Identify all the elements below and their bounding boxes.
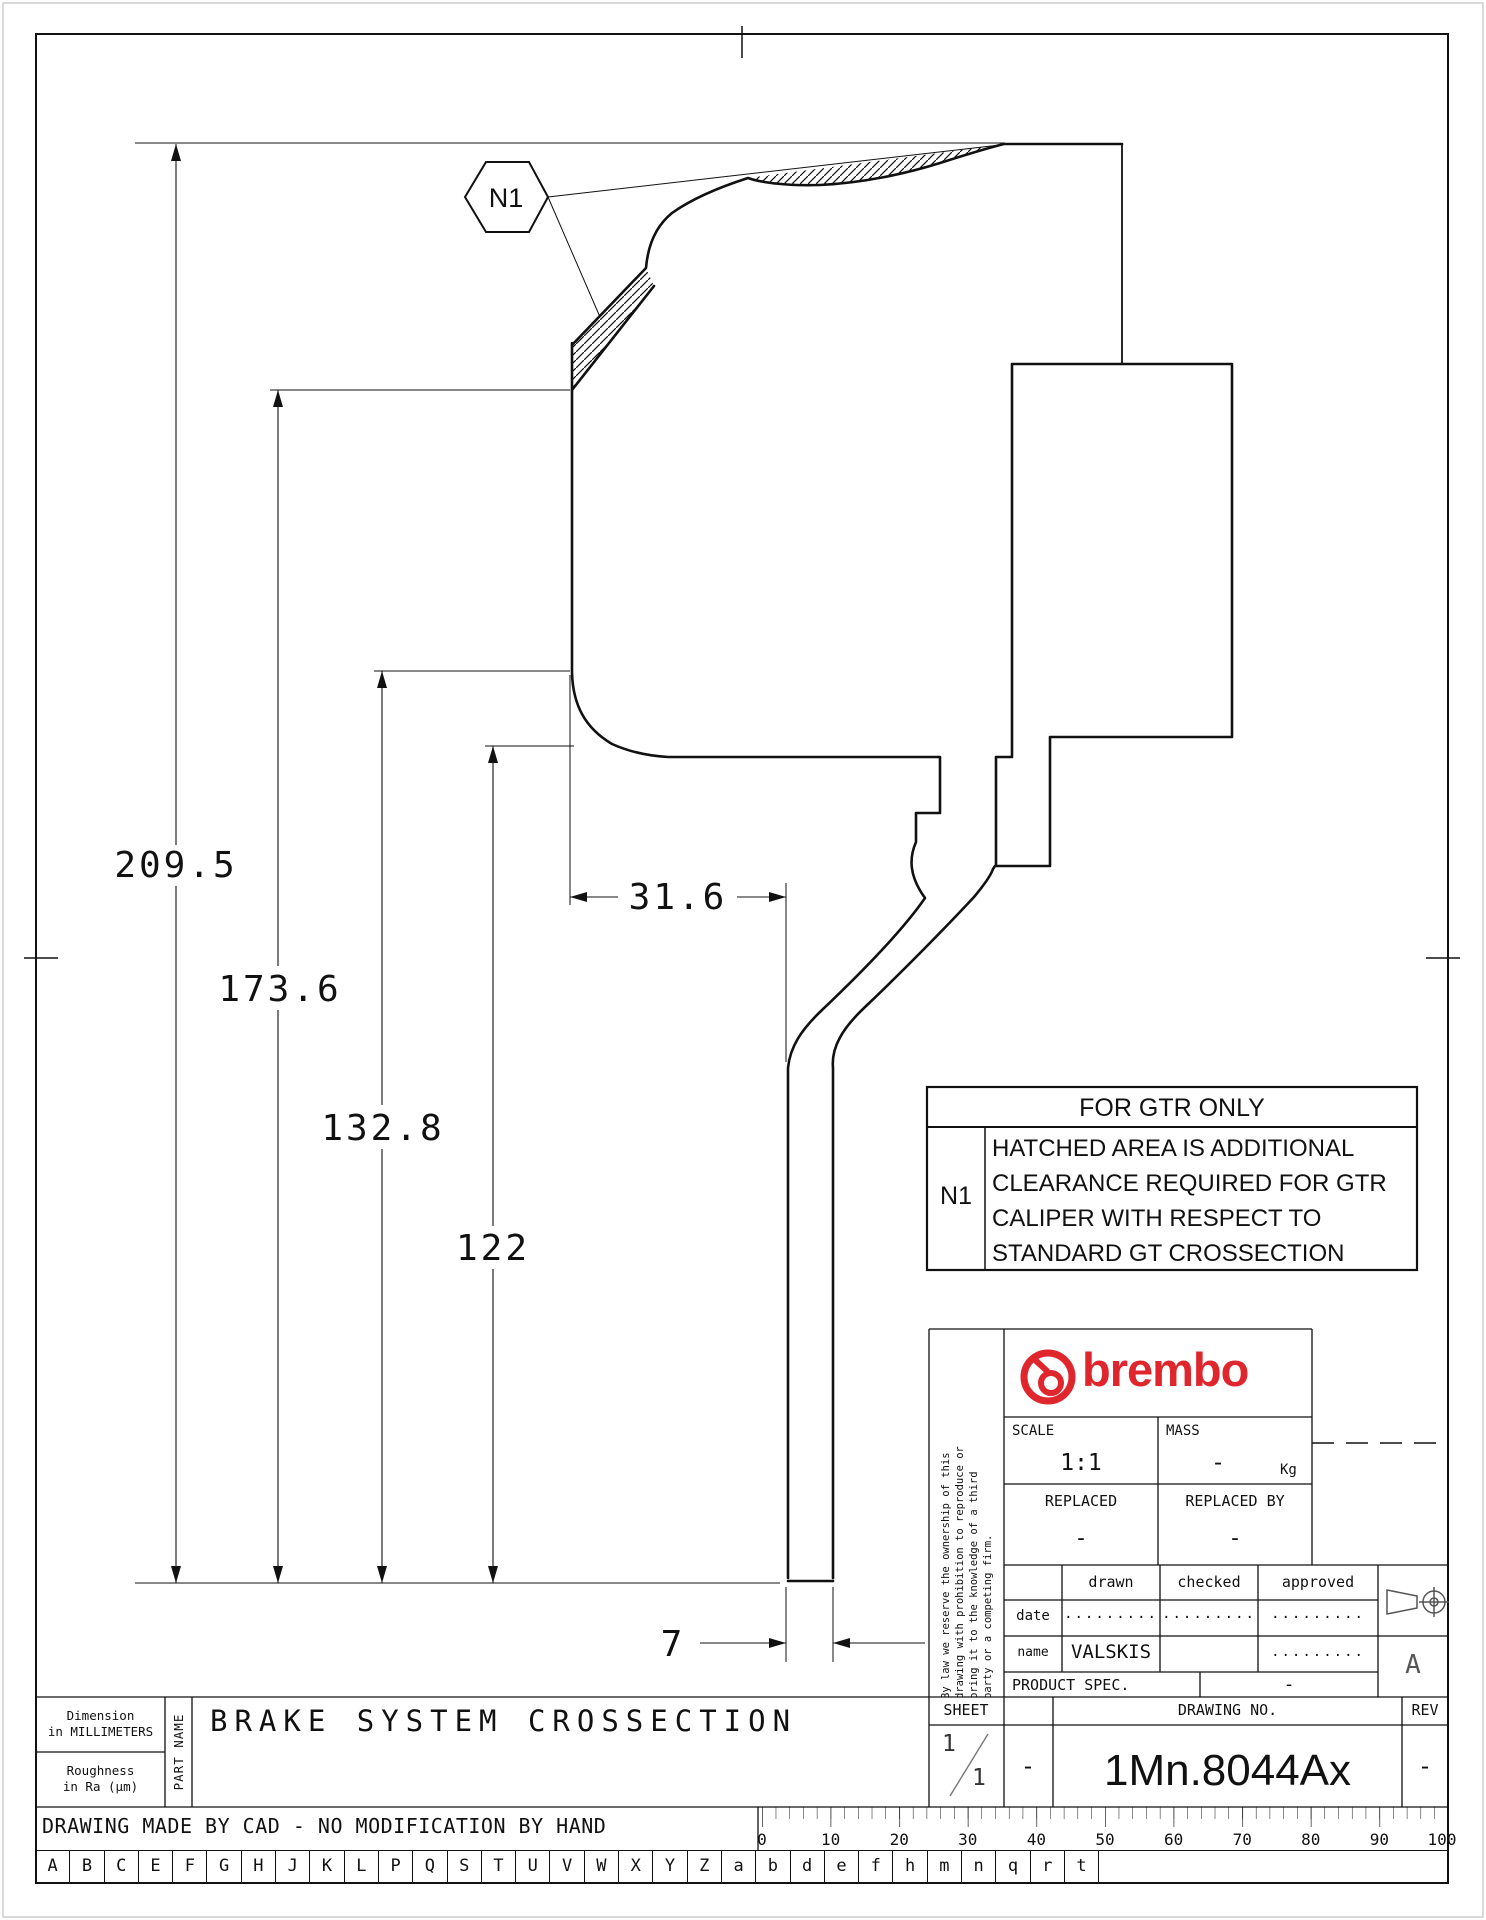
part-name-title: BRAKE SYSTEM CROSSECTION xyxy=(210,1704,797,1738)
checked-header: checked xyxy=(1160,1573,1258,1591)
legal-line: By law we reserve the ownership of this xyxy=(939,1331,953,1697)
index-letter: J xyxy=(276,1851,310,1883)
scale-value: 1:1 xyxy=(1004,1450,1158,1476)
ruler-label: 70 xyxy=(1233,1830,1252,1849)
date-checked-value: ......... xyxy=(1160,1606,1258,1622)
roughness-note-line1: Roughness xyxy=(36,1763,165,1779)
sheet-denominator: 1 xyxy=(972,1765,986,1791)
roughness-note-line2: in Ra (μm) xyxy=(36,1779,165,1795)
index-letter: h xyxy=(893,1851,927,1883)
index-letter: K xyxy=(310,1851,344,1883)
ruler-major-ticks xyxy=(762,1807,1449,1827)
scale-label: SCALE xyxy=(1012,1423,1054,1439)
dimension-note-line2: in MILLIMETERS xyxy=(36,1724,165,1740)
dim-label-31-6: 31.6 xyxy=(629,877,728,918)
mass-unit: Kg xyxy=(1280,1462,1297,1478)
part-name-label: PART NAME xyxy=(165,1697,192,1807)
dim-label-7: 7 xyxy=(661,1624,686,1665)
index-letter: L xyxy=(345,1851,379,1883)
index-letter: d xyxy=(791,1851,825,1883)
dimension-unit-note: Dimension in MILLIMETERS xyxy=(36,1708,165,1740)
mass-value: - xyxy=(1158,1450,1278,1476)
date-drawn-value: ......... xyxy=(1062,1606,1160,1622)
drawing-no-value: 1Mn.8044Ax xyxy=(1053,1746,1402,1796)
part-name-strip: PART NAME xyxy=(165,1697,192,1807)
legal-notice: By law we reserve the ownership of this … xyxy=(931,1331,1004,1697)
page-edge xyxy=(3,3,1483,1917)
projection-symbol-icon xyxy=(1387,1587,1449,1617)
index-letter: b xyxy=(756,1851,790,1883)
dimension-note-line1: Dimension xyxy=(36,1708,165,1724)
index-letter: t xyxy=(1065,1851,1099,1883)
index-letter: H xyxy=(242,1851,276,1883)
replaced-by-label: REPLACED BY xyxy=(1158,1492,1312,1510)
index-letter: U xyxy=(516,1851,550,1883)
ruler-label: 10 xyxy=(821,1830,840,1849)
index-letter: Y xyxy=(653,1851,687,1883)
index-letter: e xyxy=(825,1851,859,1883)
n1-callout-label: N1 xyxy=(489,183,524,213)
product-spec-label: PRODUCT SPEC. xyxy=(1012,1676,1129,1694)
ruler-labels: 0 10 20 30 40 50 60 70 80 90 100 xyxy=(757,1830,1456,1849)
mass-label: MASS xyxy=(1166,1423,1200,1439)
gtr-note-line: HATCHED AREA IS ADDITIONAL xyxy=(992,1131,1412,1166)
sheet-dash: - xyxy=(1003,1752,1053,1780)
extension-lines xyxy=(135,143,1005,1662)
index-letter: m xyxy=(928,1851,962,1883)
index-letter: T xyxy=(482,1851,516,1883)
ruler-label: 80 xyxy=(1301,1830,1320,1849)
brembo-logo-icon xyxy=(1024,1353,1072,1401)
index-letter: X xyxy=(619,1851,653,1883)
name-drawn-value: VALSKIS xyxy=(1062,1641,1160,1663)
ruler-label: 50 xyxy=(1095,1830,1114,1849)
roughness-unit-note: Roughness in Ra (μm) xyxy=(36,1763,165,1795)
index-letter: f xyxy=(859,1851,893,1883)
index-letter: n xyxy=(962,1851,996,1883)
index-letter: V xyxy=(550,1851,584,1883)
legal-line: party or a competing firm. xyxy=(981,1331,995,1697)
rev-label: REV xyxy=(1402,1701,1448,1719)
gtr-table-title: FOR GTR ONLY xyxy=(927,1094,1417,1123)
legal-line: drawing with prohibition to reproduce or xyxy=(953,1331,967,1697)
gtr-note-line: CLEARANCE REQUIRED FOR GTR xyxy=(992,1166,1412,1201)
approved-header: approved xyxy=(1258,1573,1378,1591)
index-letter: S xyxy=(448,1851,482,1883)
ruler-label: 40 xyxy=(1027,1830,1046,1849)
legal-line: bring it to the knowledge of a third xyxy=(967,1331,981,1697)
index-letter: r xyxy=(1031,1851,1065,1883)
date-approved-value: ......... xyxy=(1258,1606,1378,1622)
index-letter: W xyxy=(585,1851,619,1883)
ruler-label: 20 xyxy=(890,1830,909,1849)
index-letter: Q xyxy=(413,1851,447,1883)
name-approved-value: ......... xyxy=(1258,1644,1378,1660)
brembo-wordmark: brembo xyxy=(1082,1342,1248,1397)
index-letter: Z xyxy=(688,1851,722,1883)
date-label: date xyxy=(1004,1608,1062,1624)
cad-note: DRAWING MADE BY CAD - NO MODIFICATION BY… xyxy=(42,1814,606,1838)
ruler-label: 30 xyxy=(958,1830,977,1849)
gtr-table-note: HATCHED AREA IS ADDITIONAL CLEARANCE REQ… xyxy=(992,1131,1412,1271)
gtr-note-line: CALIPER WITH RESPECT TO xyxy=(992,1201,1412,1236)
centering-marks xyxy=(24,26,1460,958)
hatch-area-mid xyxy=(572,268,654,390)
ruler-label: 100 xyxy=(1428,1830,1457,1849)
cad-canvas: 209.5 173.6 132.8 122 31.6 7 N1 xyxy=(0,0,1486,1920)
projection-letter: A xyxy=(1378,1650,1448,1680)
dim-label-209-5: 209.5 xyxy=(114,845,237,886)
sheet-numerator: 1 xyxy=(942,1731,956,1757)
sheet-label: SHEET xyxy=(929,1701,1003,1719)
index-letter-filler xyxy=(1099,1851,1448,1883)
ruler-label: 60 xyxy=(1164,1830,1183,1849)
product-spec-value: - xyxy=(1200,1674,1378,1695)
drawing-no-label: DRAWING NO. xyxy=(1053,1701,1402,1719)
replaced-by-value: - xyxy=(1158,1526,1312,1551)
index-letter: A xyxy=(36,1851,70,1883)
index-letter: E xyxy=(139,1851,173,1883)
drawn-header: drawn xyxy=(1062,1573,1160,1591)
index-letter-row: A B C E F G H J K L P Q S T U V W X Y Z … xyxy=(36,1850,1448,1883)
gtr-table-ref: N1 xyxy=(927,1182,985,1211)
name-label: name xyxy=(1004,1645,1062,1660)
index-letter: F xyxy=(173,1851,207,1883)
index-letter: q xyxy=(996,1851,1030,1883)
rev-value: - xyxy=(1402,1752,1448,1780)
gtr-note-line: STANDARD GT CROSSECTION xyxy=(992,1236,1412,1271)
dim-label-122: 122 xyxy=(456,1228,530,1269)
index-letter: P xyxy=(379,1851,413,1883)
index-letter: C xyxy=(105,1851,139,1883)
replaced-value: - xyxy=(1004,1526,1158,1551)
dimension-arrows xyxy=(171,144,850,1648)
index-letter: a xyxy=(722,1851,756,1883)
index-letter: B xyxy=(70,1851,104,1883)
dim-label-173-6: 173.6 xyxy=(218,969,341,1010)
ruler-label: 90 xyxy=(1370,1830,1389,1849)
drawing-sheet: 209.5 173.6 132.8 122 31.6 7 N1 xyxy=(0,0,1486,1920)
ruler-label: 0 xyxy=(757,1830,767,1849)
replaced-label: REPLACED xyxy=(1004,1492,1158,1510)
index-letter: G xyxy=(207,1851,241,1883)
dim-label-132-8: 132.8 xyxy=(321,1108,444,1149)
dimension-lines xyxy=(176,144,925,1643)
